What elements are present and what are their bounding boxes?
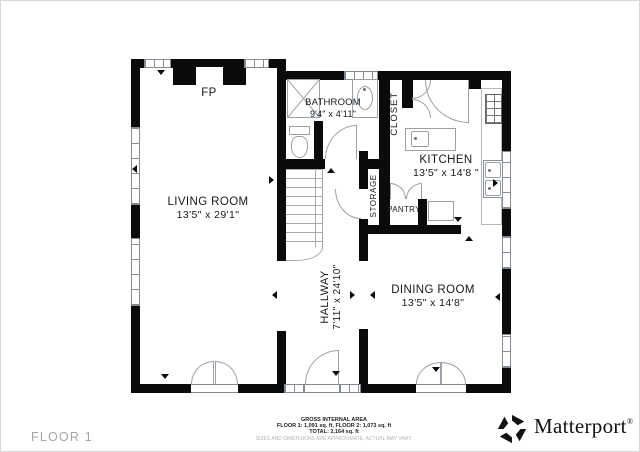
room-dims: 13'5" x 14'8": [358, 297, 508, 310]
door-arc: [325, 125, 357, 159]
door-arc: [425, 80, 469, 123]
stair-curve: [286, 247, 323, 261]
door-arc: [191, 361, 214, 384]
door-threshold: [305, 384, 339, 393]
opening-marker: [465, 236, 473, 241]
floor-plan-page: LIVING ROOM 13'5" x 29'1" FP BATHROOM 9'…: [0, 0, 640, 452]
wall: [131, 306, 140, 393]
opening-marker: [332, 371, 340, 376]
room-label-dining-room: DINING ROOM 13'5" x 14'8": [358, 283, 508, 310]
toilet-tank: [289, 126, 310, 135]
window: [144, 59, 171, 68]
matterport-pinwheel-icon: [495, 412, 529, 446]
faucet-dot: [363, 88, 366, 91]
window: [131, 238, 140, 306]
door-arc: [335, 189, 361, 219]
registered-mark: ®: [627, 417, 633, 426]
room-label-pantry: PANTRY: [382, 205, 426, 215]
faucet-dot: [488, 187, 491, 190]
door-threshold: [191, 384, 238, 393]
room-name: PANTRY: [382, 205, 426, 215]
matterport-wordmark: Matterport®: [534, 414, 633, 439]
window: [502, 334, 511, 368]
opening-marker: [269, 176, 274, 184]
wall: [314, 121, 323, 169]
door-arc: [305, 350, 339, 384]
sidelight-window: [284, 384, 305, 393]
wall: [131, 384, 191, 393]
window: [244, 59, 269, 68]
room-name: CLOSET: [389, 74, 401, 154]
room-name: DINING ROOM: [358, 283, 508, 297]
wall: [131, 59, 140, 127]
room-name: HALLWAY: [319, 252, 332, 342]
window: [502, 236, 511, 269]
room-dims: 7'11" x 24'10": [332, 252, 344, 342]
wall: [361, 384, 416, 393]
fireplace-firebox: [196, 67, 223, 85]
room-label-kitchen: KITCHEN 13'5" x 14'8 ": [396, 153, 496, 180]
fireplace-label: FP: [184, 86, 234, 100]
opening-marker: [272, 291, 277, 299]
room-dims: 9'4" x 4'11": [287, 109, 379, 120]
window: [502, 151, 511, 209]
room-dims: 13'5" x 29'1": [133, 209, 283, 222]
wall: [359, 151, 368, 189]
floor-label: FLOOR 1: [31, 430, 93, 444]
opening-marker: [454, 217, 462, 222]
stair-rail: [315, 169, 316, 247]
fireplace-abbr: FP: [184, 86, 234, 100]
room-label-bathroom: BATHROOM 9'4" x 4'11": [287, 97, 379, 120]
door-arc: [215, 361, 238, 384]
sidelight-window: [339, 384, 361, 393]
room-name: KITCHEN: [396, 153, 496, 167]
stove: [485, 94, 502, 124]
wall: [131, 59, 144, 68]
room-name: LIVING ROOM: [133, 195, 283, 209]
opening-marker: [157, 70, 165, 75]
door-threshold: [416, 384, 466, 393]
room-name: STORAGE: [369, 161, 379, 231]
matterport-logo: Matterport®: [495, 410, 635, 448]
opening-marker: [493, 179, 498, 187]
staircase: [286, 169, 323, 247]
room-label-storage: STORAGE: [369, 161, 379, 231]
opening-marker: [327, 168, 335, 173]
toilet-bowl: [291, 136, 308, 158]
faucet-dot: [414, 137, 417, 140]
wall: [502, 209, 511, 236]
pantry-cabinet: [428, 201, 454, 221]
door-arc: [441, 362, 466, 384]
room-label-hallway: HALLWAY 7'11" x 24'10": [319, 252, 347, 342]
door-arc: [390, 183, 406, 199]
opening-marker: [350, 291, 355, 299]
door-arc: [412, 99, 431, 118]
opening-marker: [132, 165, 137, 173]
area-summary: GROSS INTERNAL AREA FLOOR 1: 1,091 sq. f…: [204, 417, 464, 442]
room-name: BATHROOM: [287, 97, 379, 109]
opening-marker: [161, 374, 169, 379]
opening-marker: [432, 367, 440, 372]
door-arc: [406, 183, 422, 199]
room-dims: 13'5" x 14'8 ": [396, 167, 496, 180]
wall: [469, 71, 481, 89]
door-arc: [416, 362, 441, 384]
wall: [502, 80, 511, 151]
room-label-closet: CLOSET: [389, 74, 401, 154]
opening-marker: [298, 159, 306, 164]
area-disclaimer: SIZES AND DIMENSIONS ARE APPROXIMATE, AC…: [204, 436, 464, 442]
wall: [466, 384, 511, 393]
room-label-living-room: LIVING ROOM 13'5" x 29'1": [133, 195, 283, 222]
